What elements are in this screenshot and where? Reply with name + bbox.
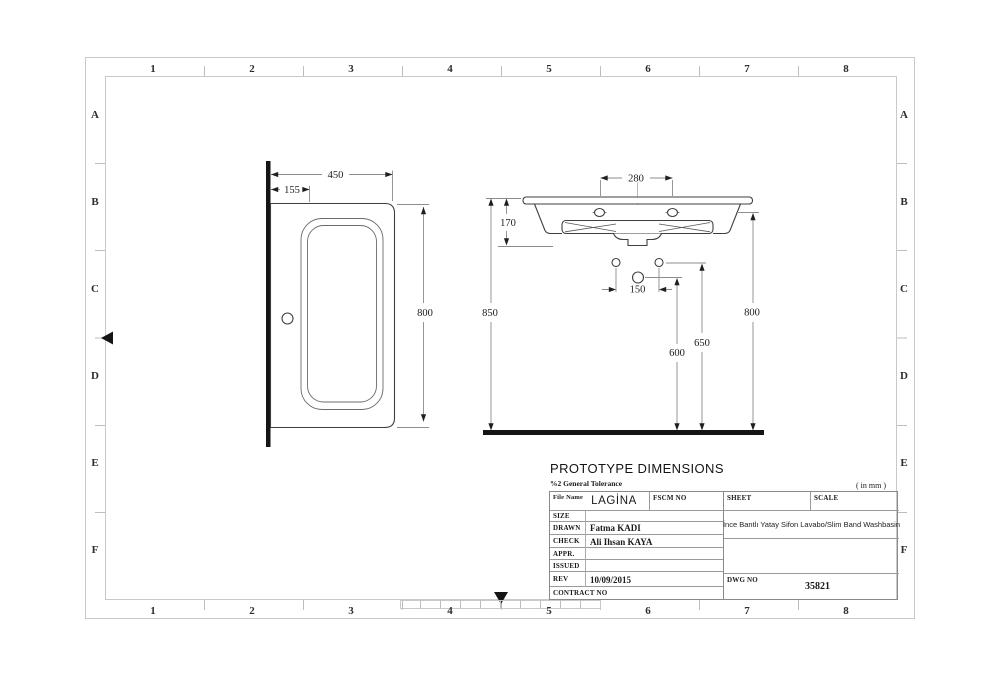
rim-profile (523, 197, 753, 204)
grid-col-top: 7 (744, 63, 750, 75)
grid-row-right: E (900, 457, 907, 469)
product-description: İnce Bantlı Yatay Sifon Lavabo/Slim Band… (724, 511, 899, 539)
washbasin-top-view: 450 155 800 (266, 161, 433, 447)
dimension-650: 650 (666, 263, 710, 431)
grid-row-left: D (91, 370, 99, 382)
grid-col-bottom: 7 (744, 605, 750, 617)
units-note: ( in mm ) (856, 481, 886, 490)
dimension-800-height: 800 (736, 213, 760, 431)
contract-row: CONTRACT NO (550, 587, 723, 601)
dwg-no-row: DWG NO 35821 (724, 574, 899, 599)
drawn-row: DRAWN Fatma KADI (550, 522, 723, 535)
contract-label: CONTRACT NO (553, 589, 607, 597)
appr-row: APPR. (550, 548, 723, 560)
grid-col-bottom: 6 (645, 605, 651, 617)
grid-col-top: 5 (546, 63, 552, 75)
scale-cell: SCALE (810, 492, 900, 510)
grid-col-top: 4 (447, 63, 453, 75)
grid-row-left: A (91, 109, 99, 121)
svg-text:450: 450 (328, 170, 344, 181)
dimension-850: 850 (482, 199, 521, 431)
drain-outlet (614, 234, 662, 246)
floor-line (483, 430, 764, 435)
grid-row-right: C (900, 283, 908, 295)
graduation-scale (401, 601, 601, 609)
slim-band (562, 221, 713, 234)
grid-row-left: C (91, 283, 99, 295)
fixing-hole-left (612, 259, 620, 267)
dimension-600: 600 (645, 278, 685, 431)
title-block-right-section: SHEET SCALE İnce Bantlı Yatay Sifon Lava… (723, 492, 899, 599)
drawn-value: Fatma KADI (590, 523, 641, 533)
empty-cell (724, 539, 899, 574)
grid-col-bottom: 1 (150, 605, 156, 617)
issued-label: ISSUED (553, 562, 580, 570)
dwg-no-value: 35821 (724, 581, 899, 592)
file-name-value: LAGİNA (578, 495, 650, 507)
check-value: Ali Ihsan KAYA (590, 537, 652, 547)
tap-hole-right (668, 209, 678, 217)
grid-col-top: 2 (249, 63, 255, 75)
grid-row-left: E (91, 457, 98, 469)
check-row: CHECK Ali Ihsan KAYA (550, 535, 723, 548)
grid-col-top: 6 (645, 63, 651, 75)
dimension-170: 170 (498, 199, 553, 247)
svg-text:800: 800 (744, 308, 760, 319)
drain-pipe-hole (633, 272, 644, 283)
check-label: CHECK (553, 537, 580, 545)
tap-hole-left (595, 209, 605, 217)
washbasin-front-view: 280 170 850 800 650 (482, 174, 764, 436)
grid-row-right: F (901, 544, 908, 556)
svg-text:650: 650 (694, 338, 710, 349)
centre-mark-left (101, 332, 113, 345)
wall-line (266, 161, 271, 447)
dimension-280: 280 (601, 174, 673, 197)
rev-value: 10/09/2015 (590, 575, 631, 585)
overflow-hole (282, 313, 293, 324)
title-block-left-section: File Name LAGİNA FSCM NO SIZE DRAWN Fatm… (550, 492, 723, 599)
fixing-hole-right (655, 259, 663, 267)
svg-text:170: 170 (500, 218, 516, 229)
grid-row-left: B (91, 196, 99, 208)
svg-text:600: 600 (669, 348, 685, 359)
grid-col-top: 3 (348, 63, 354, 75)
grid-row-right: B (900, 196, 908, 208)
sheet-scale-row: SHEET SCALE (724, 492, 899, 511)
fscm-cell: FSCM NO (649, 492, 723, 511)
label-value-divider (585, 511, 586, 587)
issued-row: ISSUED (550, 560, 723, 572)
dimension-155: 155 (271, 185, 310, 202)
file-name-row: File Name LAGİNA FSCM NO (550, 492, 723, 511)
title-prototype-dimensions: PROTOTYPE DIMENSIONS (550, 461, 724, 476)
svg-text:150: 150 (630, 285, 646, 296)
grid-col-top: 8 (843, 63, 849, 75)
grid-col-bottom: 5 (546, 605, 552, 617)
body-left-edge (535, 204, 563, 234)
scale-label: SCALE (814, 494, 838, 502)
body-right-edge (713, 204, 741, 234)
rev-label: REV (553, 575, 568, 583)
grid-col-bottom: 4 (447, 605, 453, 617)
grid-row-right: A (900, 109, 908, 121)
svg-text:155: 155 (284, 185, 300, 196)
drawn-label: DRAWN (553, 524, 580, 532)
size-label: SIZE (553, 512, 570, 520)
title-block: File Name LAGİNA FSCM NO SIZE DRAWN Fatm… (549, 491, 898, 600)
drawing-sheet: 1 2 3 4 5 6 7 8 1 2 3 4 5 6 7 8 A B C D … (0, 0, 1000, 676)
grid-col-bottom: 2 (249, 605, 255, 617)
general-tolerance-note: %2 General Tolerance (550, 479, 622, 488)
sheet-label: SHEET (727, 494, 751, 502)
grid-col-bottom: 8 (843, 605, 849, 617)
fscm-label: FSCM NO (653, 494, 686, 502)
size-row: SIZE (550, 511, 723, 522)
svg-text:850: 850 (482, 308, 498, 319)
grid-row-right: D (900, 370, 908, 382)
grid-col-top: 1 (150, 63, 156, 75)
grid-col-bottom: 3 (348, 605, 354, 617)
svg-text:280: 280 (628, 174, 644, 185)
svg-text:800: 800 (417, 308, 433, 319)
appr-label: APPR. (553, 550, 574, 558)
rev-row: REV 10/09/2015 (550, 572, 723, 587)
dimension-800-depth: 800 (397, 205, 433, 428)
grid-row-left: F (92, 544, 99, 556)
